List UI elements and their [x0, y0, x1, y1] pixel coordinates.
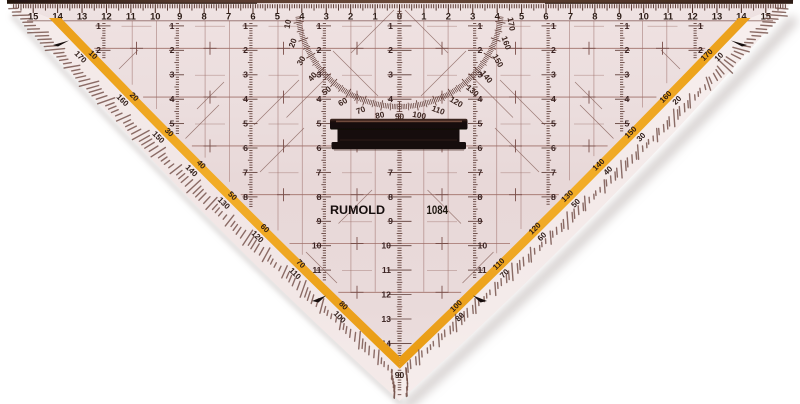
svg-text:3: 3: [551, 70, 556, 80]
svg-text:9: 9: [317, 216, 322, 226]
svg-text:4: 4: [478, 94, 483, 104]
svg-text:9: 9: [177, 11, 182, 22]
svg-text:11: 11: [663, 11, 673, 22]
svg-text:2: 2: [348, 11, 353, 22]
svg-text:15: 15: [28, 11, 38, 22]
svg-text:4: 4: [625, 94, 630, 104]
svg-text:11: 11: [382, 265, 391, 275]
svg-text:10: 10: [312, 241, 322, 251]
svg-text:8: 8: [478, 192, 483, 202]
svg-text:10: 10: [150, 11, 160, 22]
svg-text:2: 2: [243, 45, 248, 55]
svg-text:7: 7: [317, 167, 322, 177]
svg-text:8: 8: [388, 192, 393, 202]
svg-text:8: 8: [243, 192, 248, 202]
svg-text:3: 3: [388, 70, 393, 80]
svg-text:1: 1: [96, 21, 101, 31]
svg-text:2: 2: [551, 45, 556, 55]
svg-text:13: 13: [381, 314, 391, 324]
svg-text:13: 13: [77, 11, 87, 22]
svg-text:8: 8: [317, 192, 322, 202]
svg-text:2: 2: [388, 45, 393, 55]
svg-text:7: 7: [388, 167, 393, 177]
svg-text:7: 7: [226, 11, 231, 22]
svg-text:4: 4: [243, 94, 248, 104]
svg-text:15: 15: [761, 11, 771, 22]
svg-text:3: 3: [625, 70, 630, 80]
svg-text:2: 2: [170, 45, 175, 55]
svg-text:2: 2: [446, 11, 451, 22]
svg-text:9: 9: [388, 216, 393, 226]
svg-text:5: 5: [275, 11, 280, 22]
svg-text:6: 6: [250, 11, 255, 22]
svg-text:1: 1: [698, 21, 703, 31]
svg-text:7: 7: [478, 167, 483, 177]
svg-text:1: 1: [551, 21, 556, 31]
svg-text:1084: 1084: [427, 205, 449, 217]
svg-text:6: 6: [551, 143, 556, 153]
svg-text:5: 5: [478, 119, 483, 129]
svg-text:2: 2: [625, 45, 630, 55]
svg-text:1: 1: [478, 21, 483, 31]
svg-text:6: 6: [543, 11, 548, 22]
svg-text:7: 7: [568, 11, 573, 22]
svg-text:6: 6: [243, 143, 248, 153]
svg-text:5: 5: [243, 119, 248, 129]
svg-text:1: 1: [317, 21, 322, 31]
svg-text:7: 7: [551, 167, 556, 177]
svg-text:3: 3: [317, 70, 322, 80]
svg-text:3: 3: [243, 70, 248, 80]
svg-text:5: 5: [519, 11, 524, 22]
svg-text:5: 5: [317, 119, 322, 129]
svg-text:4: 4: [551, 94, 556, 104]
svg-text:8: 8: [592, 11, 597, 22]
svg-text:6: 6: [317, 143, 322, 153]
svg-text:12: 12: [687, 11, 697, 22]
svg-text:9: 9: [478, 216, 483, 226]
svg-text:12: 12: [381, 289, 391, 299]
svg-text:1: 1: [243, 21, 248, 31]
svg-text:13: 13: [712, 11, 722, 22]
svg-text:5: 5: [551, 119, 556, 129]
svg-text:8: 8: [202, 11, 207, 22]
svg-text:11: 11: [478, 265, 487, 275]
svg-text:2: 2: [317, 45, 322, 55]
svg-text:7: 7: [243, 167, 248, 177]
svg-text:3: 3: [478, 70, 483, 80]
svg-text:1: 1: [421, 11, 426, 22]
svg-text:1: 1: [625, 21, 630, 31]
svg-text:4: 4: [388, 94, 393, 104]
svg-text:1: 1: [388, 21, 393, 31]
svg-text:12: 12: [101, 11, 111, 22]
svg-text:4: 4: [495, 11, 501, 22]
svg-text:1: 1: [170, 21, 175, 31]
svg-text:8: 8: [551, 192, 556, 202]
svg-text:10: 10: [638, 11, 648, 22]
svg-text:90: 90: [395, 370, 405, 380]
svg-text:1: 1: [372, 11, 377, 22]
svg-text:4: 4: [170, 94, 175, 104]
svg-text:9: 9: [617, 11, 622, 22]
svg-text:RUMOLD: RUMOLD: [330, 205, 385, 217]
svg-text:4: 4: [317, 94, 322, 104]
svg-text:3: 3: [470, 11, 475, 22]
svg-text:3: 3: [170, 70, 175, 80]
svg-text:10: 10: [478, 241, 488, 251]
svg-text:11: 11: [126, 11, 136, 22]
svg-text:3: 3: [324, 11, 329, 22]
svg-text:6: 6: [478, 143, 483, 153]
svg-text:10: 10: [381, 241, 391, 251]
svg-text:2: 2: [478, 45, 483, 55]
